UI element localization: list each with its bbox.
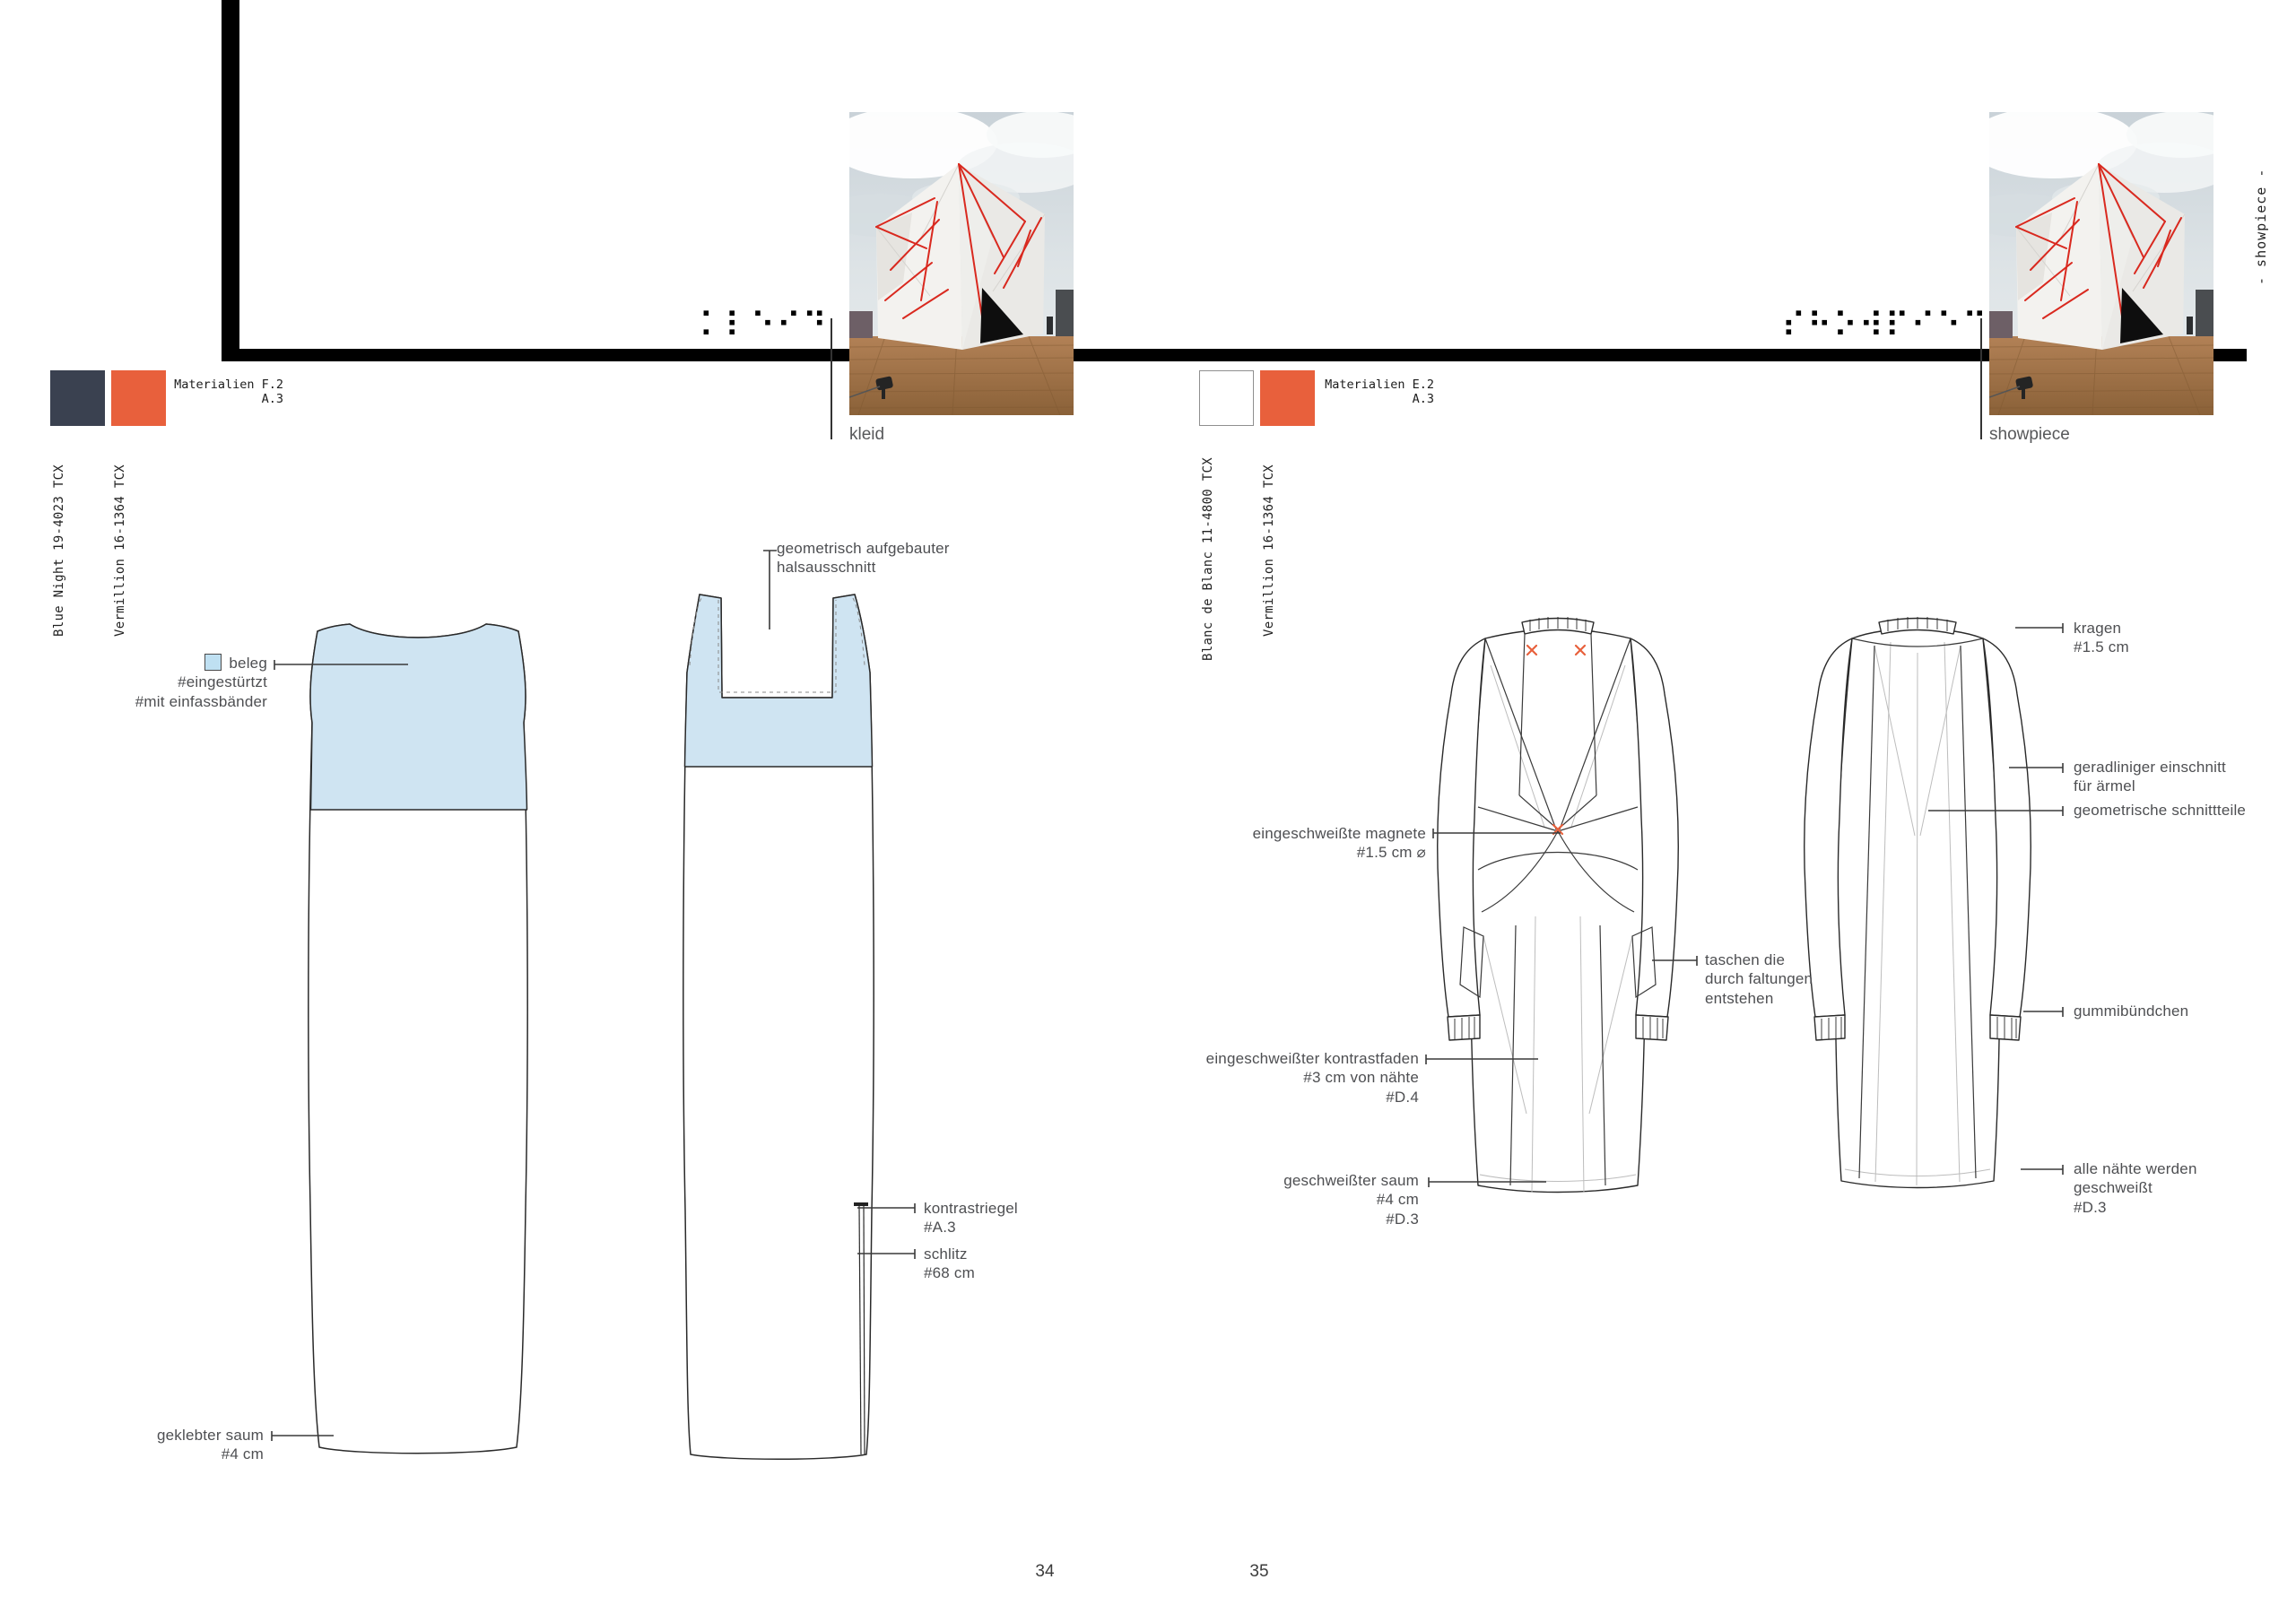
annotation-halsausschnitt: geometrisch aufgebauter halsausschnitt (777, 539, 950, 577)
annotation-schlitz: schlitz #68 cm (924, 1245, 975, 1283)
side-label-showpiece: - showpiece - (2253, 169, 2269, 285)
annotation-gummibuendchen: gummibündchen (2074, 1002, 2188, 1020)
frame-vertical-bar (222, 0, 239, 361)
materials-label-right: Materialien E.2 A.3 (1321, 378, 1434, 406)
showpiece-front-flat (1428, 612, 1688, 1212)
showpiece-back-flat (1789, 612, 2045, 1203)
annotation-einschnitt: geradliniger einschnitt für ärmel (2074, 758, 2226, 796)
swatch-vermillion-right (1260, 370, 1315, 426)
caption-rule-right (1980, 318, 1982, 439)
materials-label-left: Materialien F.2 A.3 (170, 378, 283, 406)
dress-front-flat (296, 617, 538, 1469)
photo-caption-showpiece: showpiece (1989, 425, 2070, 445)
annotation-taschen: taschen die durch faltungen entstehen (1705, 950, 1813, 1008)
annotation-kragen: kragen #1.5 cm (2074, 619, 2129, 657)
beleg-swatch-icon (204, 654, 222, 671)
annotation-naehte: alle nähte werden geschweißt #D.3 (2074, 1159, 2197, 1217)
swatch-blue-night (50, 370, 105, 426)
dress-back-flat (671, 583, 886, 1471)
annotation-geschweisster-saum: geschweißter saum #4 cm #D.3 (1245, 1171, 1419, 1228)
swatch-label-vermillion-left: Vermillion 16-1364 TCX (113, 464, 127, 637)
annotation-beleg: beleg #eingestürtzt #mit einfassbänder (54, 654, 267, 711)
annotation-magnete: eingeschweißte magnete #1.5 cm ⌀ (1229, 824, 1426, 863)
frame-horizontal-bar (222, 349, 2247, 361)
swatch-label-blanc: Blanc de Blanc 11-4800 TCX (1201, 457, 1215, 661)
braille-kleid: ⠅⠇⠑⠊⠙ (699, 306, 828, 345)
pavilion-photo-showpiece (1989, 112, 2213, 415)
swatch-label-blue-night: Blue Night 19-4023 TCX (52, 464, 66, 637)
swatch-vermillion-left (111, 370, 166, 426)
pavilion-photo-kleid (849, 112, 1074, 415)
page-number-left: 34 (1025, 1562, 1065, 1582)
swatch-blanc-de-blanc (1199, 370, 1254, 426)
braille-showpiece: ⠎⠓⠕⠺⠏⠊⠑⠉⠑ (1781, 306, 2014, 345)
annotation-kontrastriegel: kontrastriegel #A.3 (924, 1199, 1018, 1237)
photo-caption-kleid: kleid (849, 425, 884, 445)
lookbook-spread: { "colors": { "blue_night": "#3a4150", "… (0, 0, 2296, 1623)
caption-rule-left (831, 318, 832, 439)
annotation-kontrastfaden: eingeschweißter kontrastfaden #3 cm von … (1166, 1049, 1419, 1107)
page-number-right: 35 (1239, 1562, 1279, 1582)
annotation-geklebter-saum: geklebter saum #4 cm (90, 1426, 264, 1464)
annotation-schnittteile: geometrische schnittteile (2074, 801, 2246, 820)
swatch-label-vermillion-right: Vermillion 16-1364 TCX (1262, 464, 1276, 637)
